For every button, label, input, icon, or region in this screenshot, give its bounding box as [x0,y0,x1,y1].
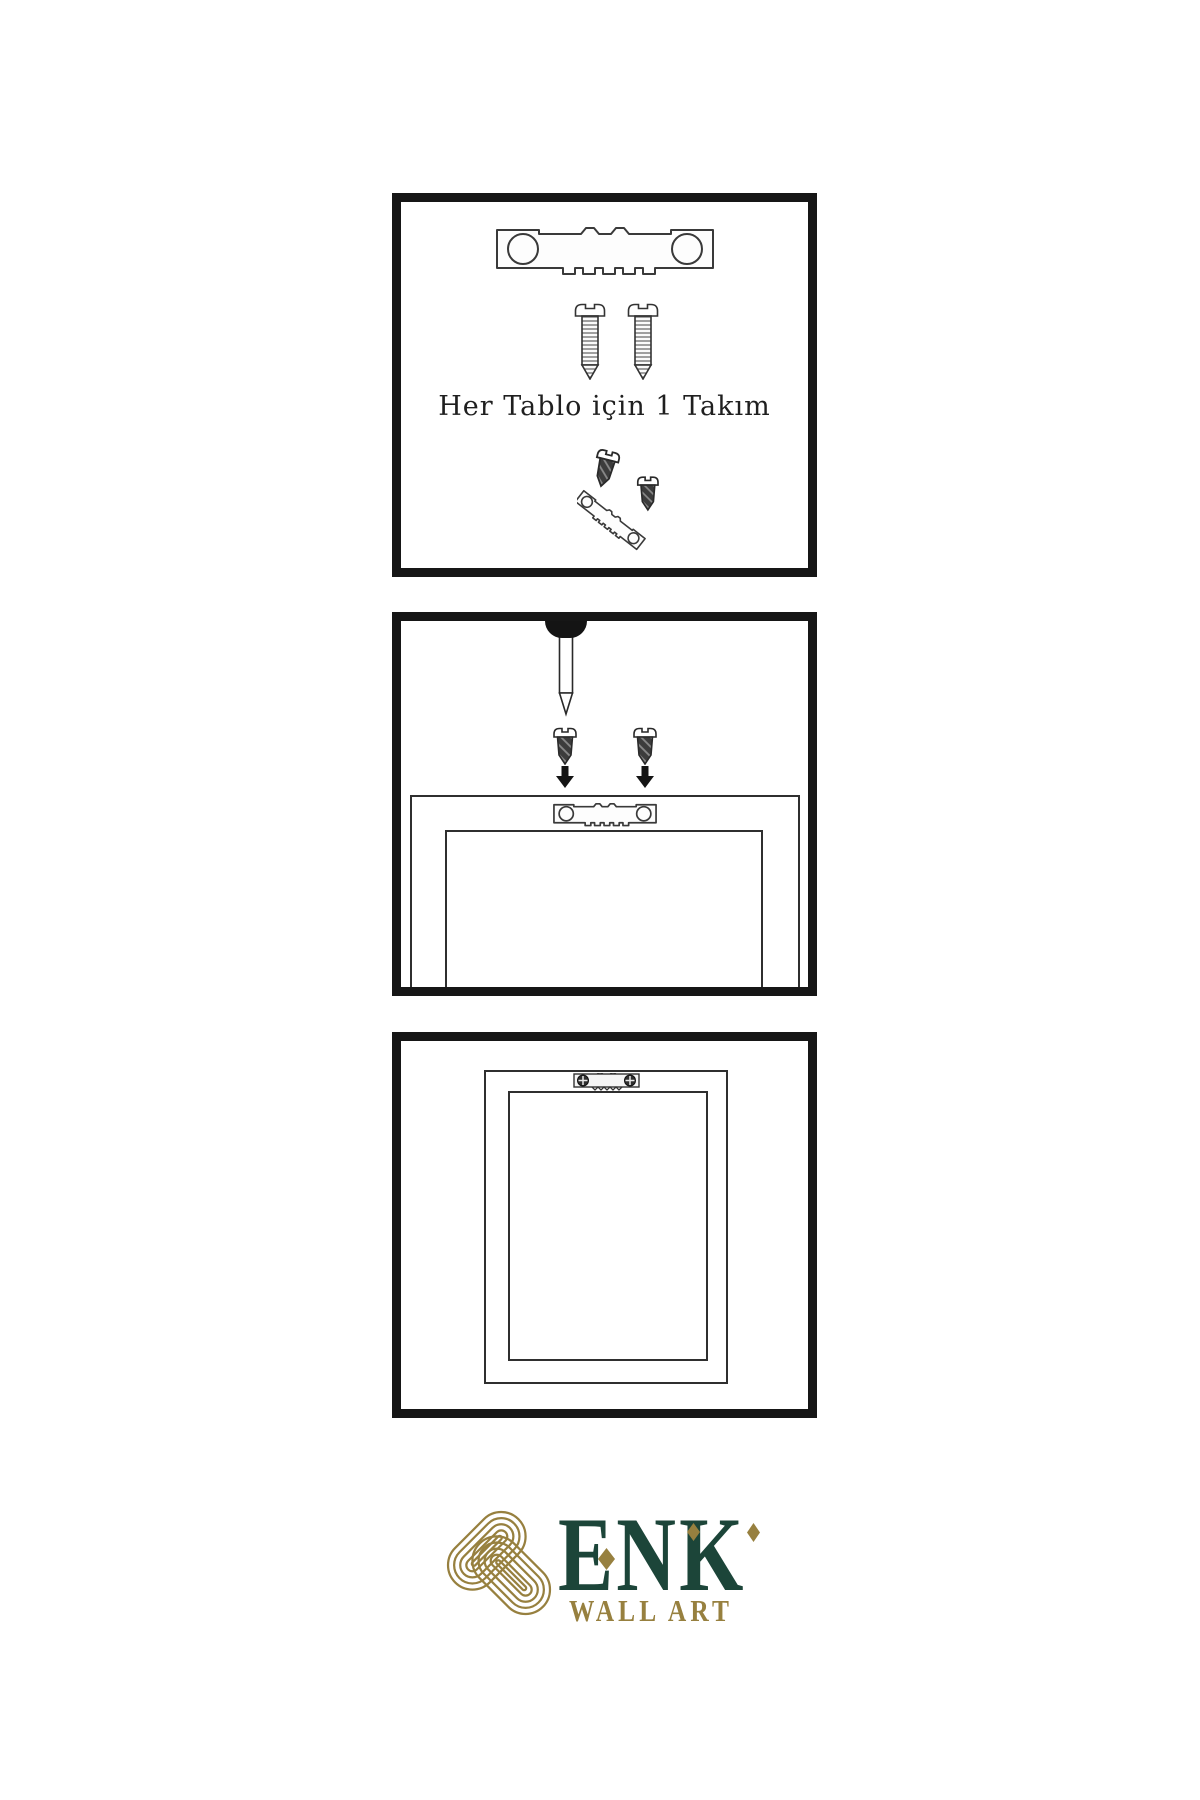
dark-screw-left-icon [551,725,579,765]
down-arrow-right-icon [636,766,654,788]
knot-logo-icon [438,1495,560,1631]
down-arrow-left-icon [556,766,574,788]
frame-inner-edge [508,1091,708,1361]
panel-hardware-kit: Her Tablo için 1 Takım [392,193,817,577]
kit-caption: Her Tablo için 1 Takım [401,391,808,422]
instruction-sheet: { "page": { "background": "#ffffff", "in… [0,0,1200,1800]
frame-back-inner-edge [445,830,763,987]
screw-into-hanger-icon [577,448,673,554]
sawtooth-hanger-small-icon [553,801,657,827]
wood-screws-pair-icon [572,300,662,380]
panel-hung-frame [392,1032,817,1418]
sawtooth-hanger-icon [495,222,715,277]
wall-plug-icon [545,621,587,638]
diamond-accent-icon [747,1523,760,1542]
brand-tagline: WALL ART [569,1595,733,1626]
dark-screw-right-icon [631,725,659,765]
panel-wall-mounting [392,612,817,996]
mounted-hanger-icon [573,1073,640,1092]
frame-outer-edge [484,1070,728,1384]
